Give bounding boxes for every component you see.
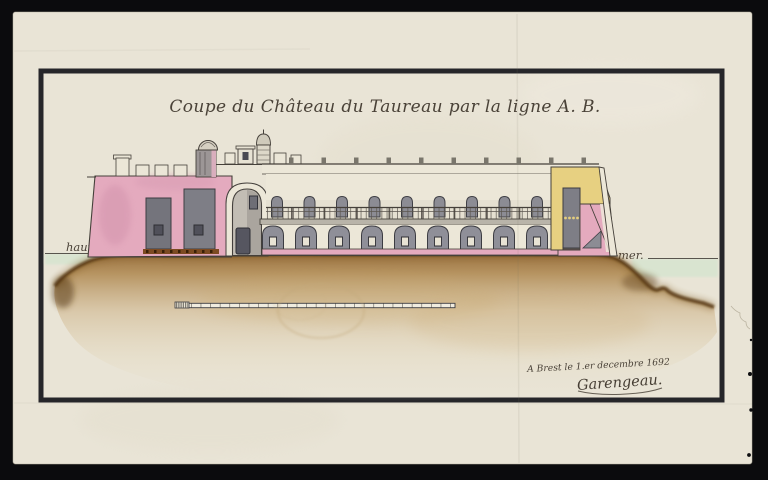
scale-bar — [175, 302, 455, 308]
beam-hole — [572, 217, 575, 220]
pink-wash-mottle — [99, 185, 131, 245]
merlon — [274, 153, 286, 164]
drawing-title: Coupe du Château du Taureau par la ligne… — [169, 97, 600, 117]
arch-embrasure — [336, 237, 343, 246]
watch-box-window — [243, 152, 249, 160]
scanned-plan-image: Coupe du Château du Taureau par la ligne… — [0, 0, 768, 480]
arch-embrasure — [534, 237, 541, 246]
beam-hole — [568, 217, 571, 220]
fold-crease-horizontal — [14, 403, 752, 404]
upper-window — [499, 197, 510, 218]
merlon — [155, 165, 168, 176]
gallery-walkway — [260, 219, 556, 225]
merlon — [225, 153, 235, 164]
bell-turret-body — [257, 145, 270, 164]
merlon — [174, 165, 187, 176]
stair-turret-pink-edge — [212, 150, 217, 177]
paper-hole — [749, 408, 752, 411]
rock-dark-patch — [622, 273, 658, 291]
beam-hole — [564, 217, 567, 220]
rock-dark-patch — [52, 276, 74, 308]
casemate-room — [146, 198, 171, 249]
upper-window — [532, 197, 543, 218]
drawing-canvas: Coupe du Château du Taureau par la ligne… — [0, 0, 768, 480]
casemate-room — [184, 189, 215, 249]
scale-bar-rule — [189, 303, 455, 307]
arch-embrasure — [303, 237, 310, 246]
casemate-window — [194, 225, 203, 235]
beam-hole — [576, 217, 579, 220]
upper-window — [369, 197, 380, 218]
merlon — [136, 165, 149, 176]
tower-window — [250, 196, 258, 209]
casemate-window — [154, 225, 163, 235]
arch-embrasure — [270, 237, 277, 246]
upper-window — [272, 197, 283, 218]
barracks-parapet — [262, 164, 599, 174]
paper-hole — [750, 339, 752, 341]
arch-embrasure — [402, 237, 409, 246]
rock-mid-wash — [410, 294, 650, 350]
upper-window — [402, 197, 413, 218]
arch-embrasure — [369, 237, 376, 246]
merlon — [116, 158, 129, 176]
tower-door — [236, 228, 250, 254]
bell-turret-dome — [257, 134, 271, 145]
paper-hole — [748, 372, 752, 376]
arch-embrasure — [435, 237, 442, 246]
paper-hole — [747, 453, 751, 457]
arch-embrasure — [468, 237, 475, 246]
arch-embrasure — [501, 237, 508, 246]
